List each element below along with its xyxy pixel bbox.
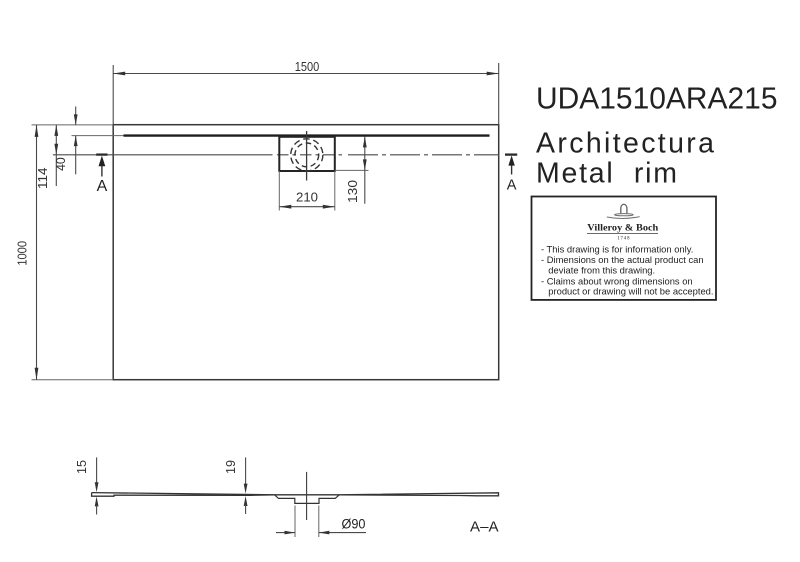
svg-text:210: 210 [296, 191, 318, 205]
svg-text:15: 15 [75, 460, 89, 474]
svg-text:1500: 1500 [295, 60, 320, 74]
svg-text:- This drawing is for informat: - This drawing is for information only. [541, 243, 693, 254]
svg-text:deviate from this drawing.: deviate from this drawing. [548, 265, 655, 276]
svg-text:130: 130 [346, 180, 360, 203]
svg-text:40: 40 [54, 157, 68, 171]
svg-text:product or drawing will not be: product or drawing will not be accepted. [548, 285, 713, 296]
svg-text:A: A [97, 178, 108, 195]
svg-text:1748: 1748 [617, 237, 630, 242]
svg-text:- Dimensions on the actual pro: - Dimensions on the actual product can [541, 254, 704, 265]
svg-text:UDA1510ARA215: UDA1510ARA215 [536, 80, 778, 115]
svg-text:Ø90: Ø90 [342, 516, 366, 531]
svg-text:114: 114 [36, 168, 50, 190]
svg-text:1000: 1000 [16, 241, 30, 266]
svg-text:Architectura: Architectura [536, 127, 714, 159]
svg-text:19: 19 [224, 460, 238, 474]
svg-text:A–A: A–A [470, 518, 499, 535]
svg-text:Villeroy & Boch: Villeroy & Boch [587, 223, 659, 234]
svg-text:A: A [507, 178, 517, 194]
svg-text:Metal rim: Metal rim [536, 157, 677, 189]
